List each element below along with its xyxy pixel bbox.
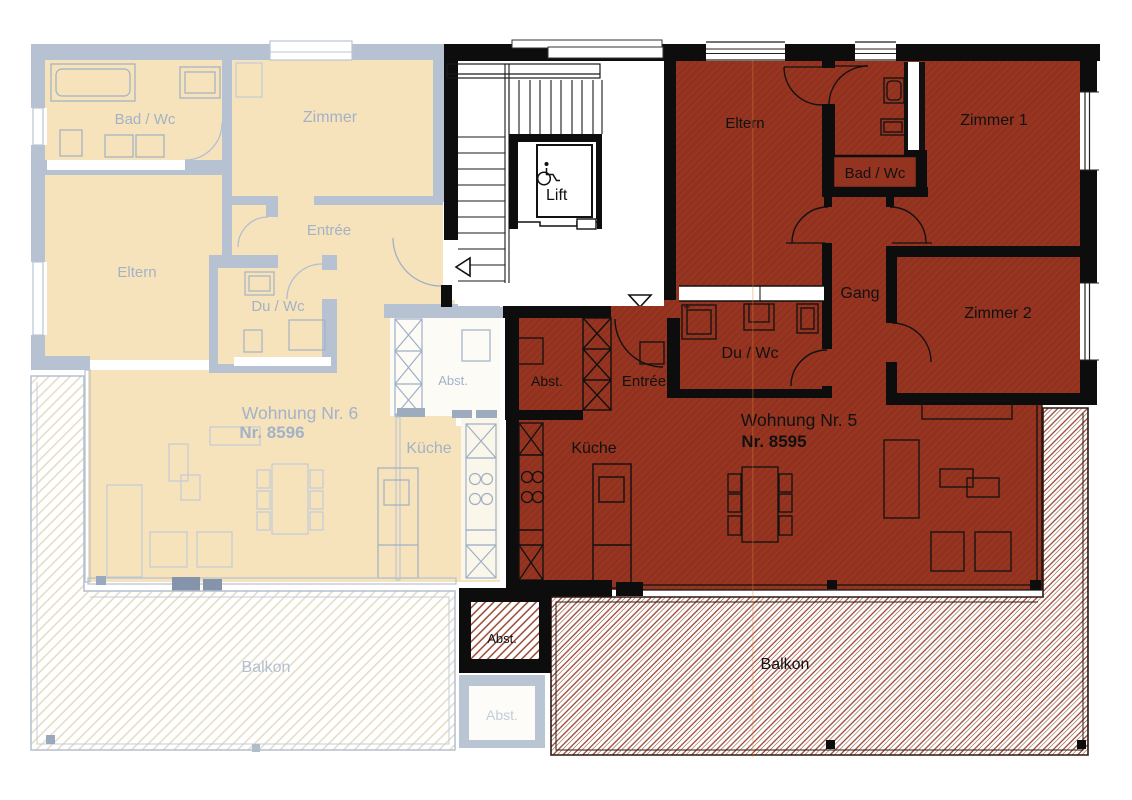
svg-text:Abst.: Abst. [438, 373, 468, 388]
svg-text:Wohnung Nr. 6: Wohnung Nr. 6 [242, 403, 358, 423]
svg-text:Wohnung Nr. 5: Wohnung Nr. 5 [741, 410, 857, 430]
svg-text:Balkon: Balkon [761, 656, 810, 673]
svg-text:Entrée: Entrée [307, 222, 351, 239]
svg-text:Abst.: Abst. [531, 373, 563, 389]
svg-text:Eltern: Eltern [117, 264, 156, 281]
svg-text:Balkon: Balkon [242, 659, 291, 676]
svg-text:Lift: Lift [546, 187, 568, 204]
svg-text:Du / Wc: Du / Wc [722, 345, 779, 362]
svg-text:Eltern: Eltern [725, 115, 764, 132]
svg-text:Bad / Wc: Bad / Wc [115, 111, 176, 128]
svg-text:Nr. 8595: Nr. 8595 [741, 432, 806, 451]
svg-text:Zimmer: Zimmer [303, 109, 358, 126]
svg-text:Du / Wc: Du / Wc [251, 298, 305, 315]
svg-text:Abst.: Abst. [487, 631, 517, 646]
svg-text:Bad / Wc: Bad / Wc [845, 165, 906, 182]
svg-text:Gang: Gang [840, 285, 879, 302]
svg-text:Nr. 8596: Nr. 8596 [239, 423, 304, 442]
svg-text:Abst.: Abst. [486, 707, 518, 723]
svg-text:Zimmer 1: Zimmer 1 [960, 112, 1028, 129]
svg-text:Zimmer 2: Zimmer 2 [964, 305, 1032, 322]
svg-text:Küche: Küche [571, 440, 616, 457]
svg-text:Küche: Küche [406, 440, 451, 457]
svg-text:Entrée: Entrée [622, 373, 666, 390]
